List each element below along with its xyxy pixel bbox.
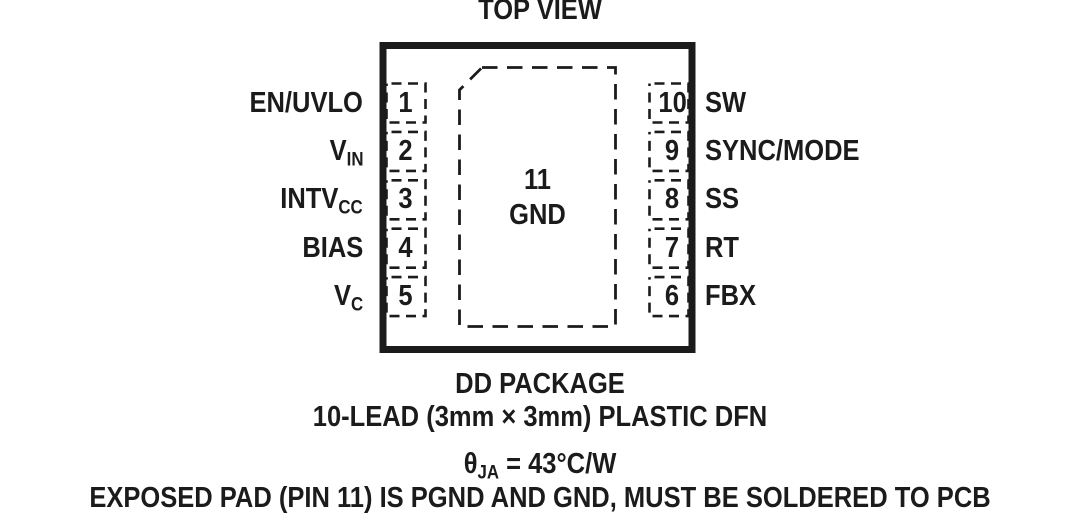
pin-label-text: EN/UVLO <box>250 87 363 119</box>
exposed-pad-label: GND <box>405 201 670 230</box>
pin-label-vc: VC <box>334 282 363 311</box>
exposed-pad-number: 11 <box>405 166 670 195</box>
thermal-resistance-line: θJA = 43°C/W <box>65 450 1015 479</box>
pin-number-1: 1 <box>388 89 422 118</box>
pin-number-7: 7 <box>651 234 685 263</box>
pin-label-fbx: FBX <box>705 282 756 311</box>
package-outline <box>383 46 692 350</box>
pin-label-en-uvlo: EN/UVLO <box>250 89 363 118</box>
pin-label-subscript: IN <box>346 149 363 170</box>
pin-label-sw: SW <box>705 89 746 118</box>
pin-number-2: 2 <box>388 137 422 166</box>
pin-label-text: V <box>329 135 346 167</box>
pin-label-text: BIAS <box>302 232 363 264</box>
pin-number-9: 9 <box>651 137 685 166</box>
theta-value: = 43°C/W <box>499 448 616 480</box>
diagram-title: TOP VIEW <box>65 0 1015 25</box>
pinout-diagram: TOP VIEW EN/UVLO VIN INTVCC BIAS VC SW S… <box>0 0 1080 519</box>
pin-label-text: INTV <box>281 183 339 215</box>
pin-label-rt: RT <box>705 234 739 263</box>
pin-label-bias: BIAS <box>302 234 363 263</box>
package-drawing <box>0 0 1080 519</box>
package-description: 10-LEAD (3mm × 3mm) PLASTIC DFN <box>65 403 1015 432</box>
package-name: DD PACKAGE <box>65 370 1015 399</box>
theta-subscript: JA <box>477 462 499 483</box>
theta-symbol: θ <box>464 448 478 480</box>
pin-label-sync-mode: SYNC/MODE <box>705 137 860 166</box>
pin-number-10: 10 <box>651 89 685 118</box>
pin-label-text: V <box>334 280 351 312</box>
pin-number-4: 4 <box>388 234 422 263</box>
pin-number-6: 6 <box>651 282 685 311</box>
pin-label-intvcc: INTVCC <box>281 185 363 214</box>
pin-label-subscript: C <box>351 294 363 315</box>
pin-label-vin: VIN <box>329 137 363 166</box>
pin-number-5: 5 <box>388 282 422 311</box>
pin-label-subscript: CC <box>339 198 363 219</box>
pin-label-ss: SS <box>705 185 739 214</box>
exposed-pad-note: EXPOSED PAD (PIN 11) IS PGND AND GND, MU… <box>65 484 1015 513</box>
